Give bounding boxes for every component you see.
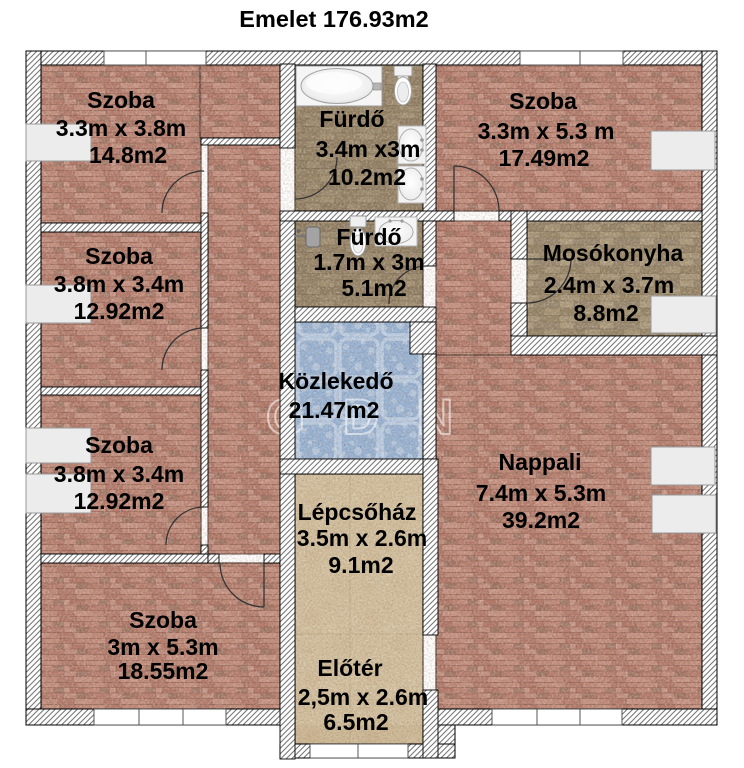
svg-text:21.47m2: 21.47m2 [289, 397, 380, 423]
svg-text:39.2m2: 39.2m2 [502, 507, 580, 533]
svg-text:3.3m x 3.8m: 3.3m x 3.8m [56, 115, 186, 141]
svg-text:8.8m2: 8.8m2 [573, 300, 638, 326]
svg-text:Szoba: Szoba [85, 243, 153, 269]
svg-text:Emelet 176.93m2: Emelet 176.93m2 [239, 6, 428, 32]
svg-text:3.4m x3m: 3.4m x3m [316, 136, 421, 162]
svg-text:Szoba: Szoba [509, 88, 577, 114]
svg-text:Lépcsőház: Lépcsőház [298, 499, 417, 525]
svg-text:9.1m2: 9.1m2 [328, 552, 393, 578]
svg-text:Szoba: Szoba [85, 432, 153, 458]
svg-text:2.4m x 3.7m: 2.4m x 3.7m [544, 272, 674, 298]
svg-text:14.8m2: 14.8m2 [89, 142, 167, 168]
svg-text:12.92m2: 12.92m2 [74, 488, 165, 514]
svg-text:6.5m2: 6.5m2 [323, 709, 388, 735]
svg-text:Mosókonyha: Mosókonyha [543, 240, 684, 266]
svg-text:Szoba: Szoba [87, 87, 155, 113]
svg-text:Közlekedő: Közlekedő [278, 368, 393, 394]
svg-text:Szoba: Szoba [129, 607, 197, 633]
svg-text:3.5m x 2.6m: 3.5m x 2.6m [297, 525, 427, 551]
svg-text:Nappali: Nappali [498, 449, 581, 475]
svg-text:1.7m x 3m: 1.7m x 3m [313, 249, 424, 275]
svg-text:Fürdő: Fürdő [336, 224, 401, 250]
svg-text:Előtér: Előtér [317, 655, 382, 681]
svg-text:17.49m2: 17.49m2 [499, 145, 590, 171]
svg-text:3m x 5.3m: 3m x 5.3m [107, 634, 218, 660]
svg-text:3.3m x 5.3 m: 3.3m x 5.3 m [478, 118, 615, 144]
svg-text:5.1m2: 5.1m2 [341, 275, 406, 301]
svg-text:Fürdő: Fürdő [319, 106, 384, 132]
svg-text:3.8m x 3.4m: 3.8m x 3.4m [54, 271, 184, 297]
svg-text:12.92m2: 12.92m2 [74, 298, 165, 324]
svg-text:2,5m x 2.6m: 2,5m x 2.6m [298, 684, 428, 710]
svg-text:18.55m2: 18.55m2 [118, 658, 209, 684]
svg-text:3.8m x 3.4m: 3.8m x 3.4m [54, 461, 184, 487]
svg-text:10.2m2: 10.2m2 [328, 164, 406, 190]
svg-text:7.4m x 5.3m: 7.4m x 5.3m [476, 480, 606, 506]
